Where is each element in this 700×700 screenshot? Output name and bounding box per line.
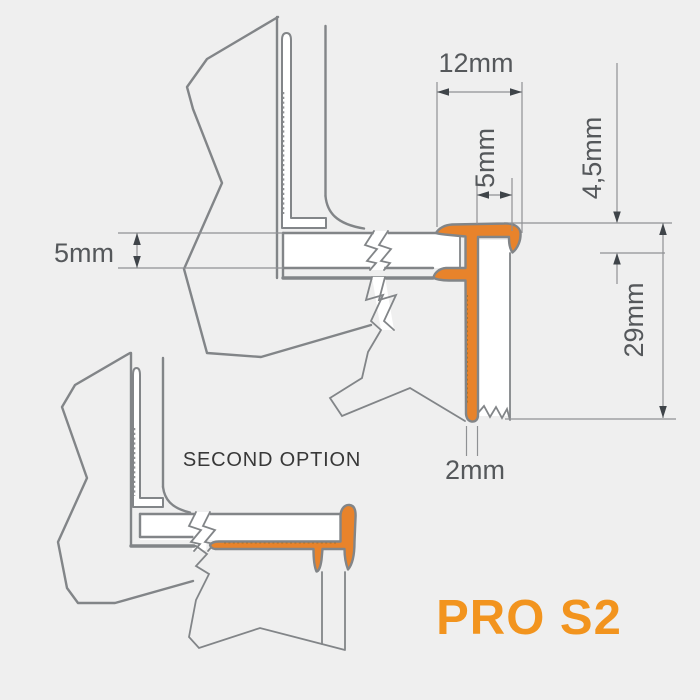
arrowhead-right xyxy=(510,88,522,96)
dim-label-12mm: 12mm xyxy=(438,48,513,78)
dimension-nose-height: 4,5mm xyxy=(509,63,672,284)
arrowhead-left xyxy=(437,88,449,96)
l-retainer-profile-2 xyxy=(133,368,163,507)
arrowhead-bottom xyxy=(659,406,667,418)
pro-s2-technical-drawing: 12mm 5mm 4,5mm 29mm xyxy=(0,0,700,700)
dimension-anchor-thickness: 2mm xyxy=(445,426,505,485)
l-retainer-profile xyxy=(282,33,326,228)
arrowhead-right xyxy=(500,191,512,199)
dim-label-4-5mm: 4,5mm xyxy=(577,117,607,200)
dim-label-5mm-tile: 5mm xyxy=(54,238,114,268)
dim-label-2mm: 2mm xyxy=(445,455,505,485)
dimension-tile-thickness: 5mm xyxy=(54,233,283,268)
cove-bead xyxy=(326,196,365,229)
arrowhead-top xyxy=(133,233,141,245)
anchor-backing-fill xyxy=(479,240,510,416)
dimension-channel-width: 5mm xyxy=(470,128,512,231)
arrowhead-left xyxy=(477,191,489,199)
second-option-drawing: SECOND OPTION xyxy=(58,353,361,650)
dim-label-29mm: 29mm xyxy=(619,282,649,357)
arrowhead-top xyxy=(659,223,667,235)
product-logo: PRO S2 xyxy=(436,591,622,645)
arrowhead-up xyxy=(613,253,621,265)
diagram-canvas: 12mm 5mm 4,5mm 29mm xyxy=(0,0,700,700)
substrate-crack-left xyxy=(330,277,465,421)
arrowhead-down xyxy=(613,212,621,224)
dim-label-5mm-channel: 5mm xyxy=(470,128,500,188)
arrowhead-bottom xyxy=(133,256,141,268)
cove-bead-2 xyxy=(163,487,190,513)
main-drawing: 12mm 5mm 4,5mm 29mm xyxy=(54,17,676,485)
second-option-label: SECOND OPTION xyxy=(183,449,361,471)
wall-break-outline-2 xyxy=(58,353,193,603)
